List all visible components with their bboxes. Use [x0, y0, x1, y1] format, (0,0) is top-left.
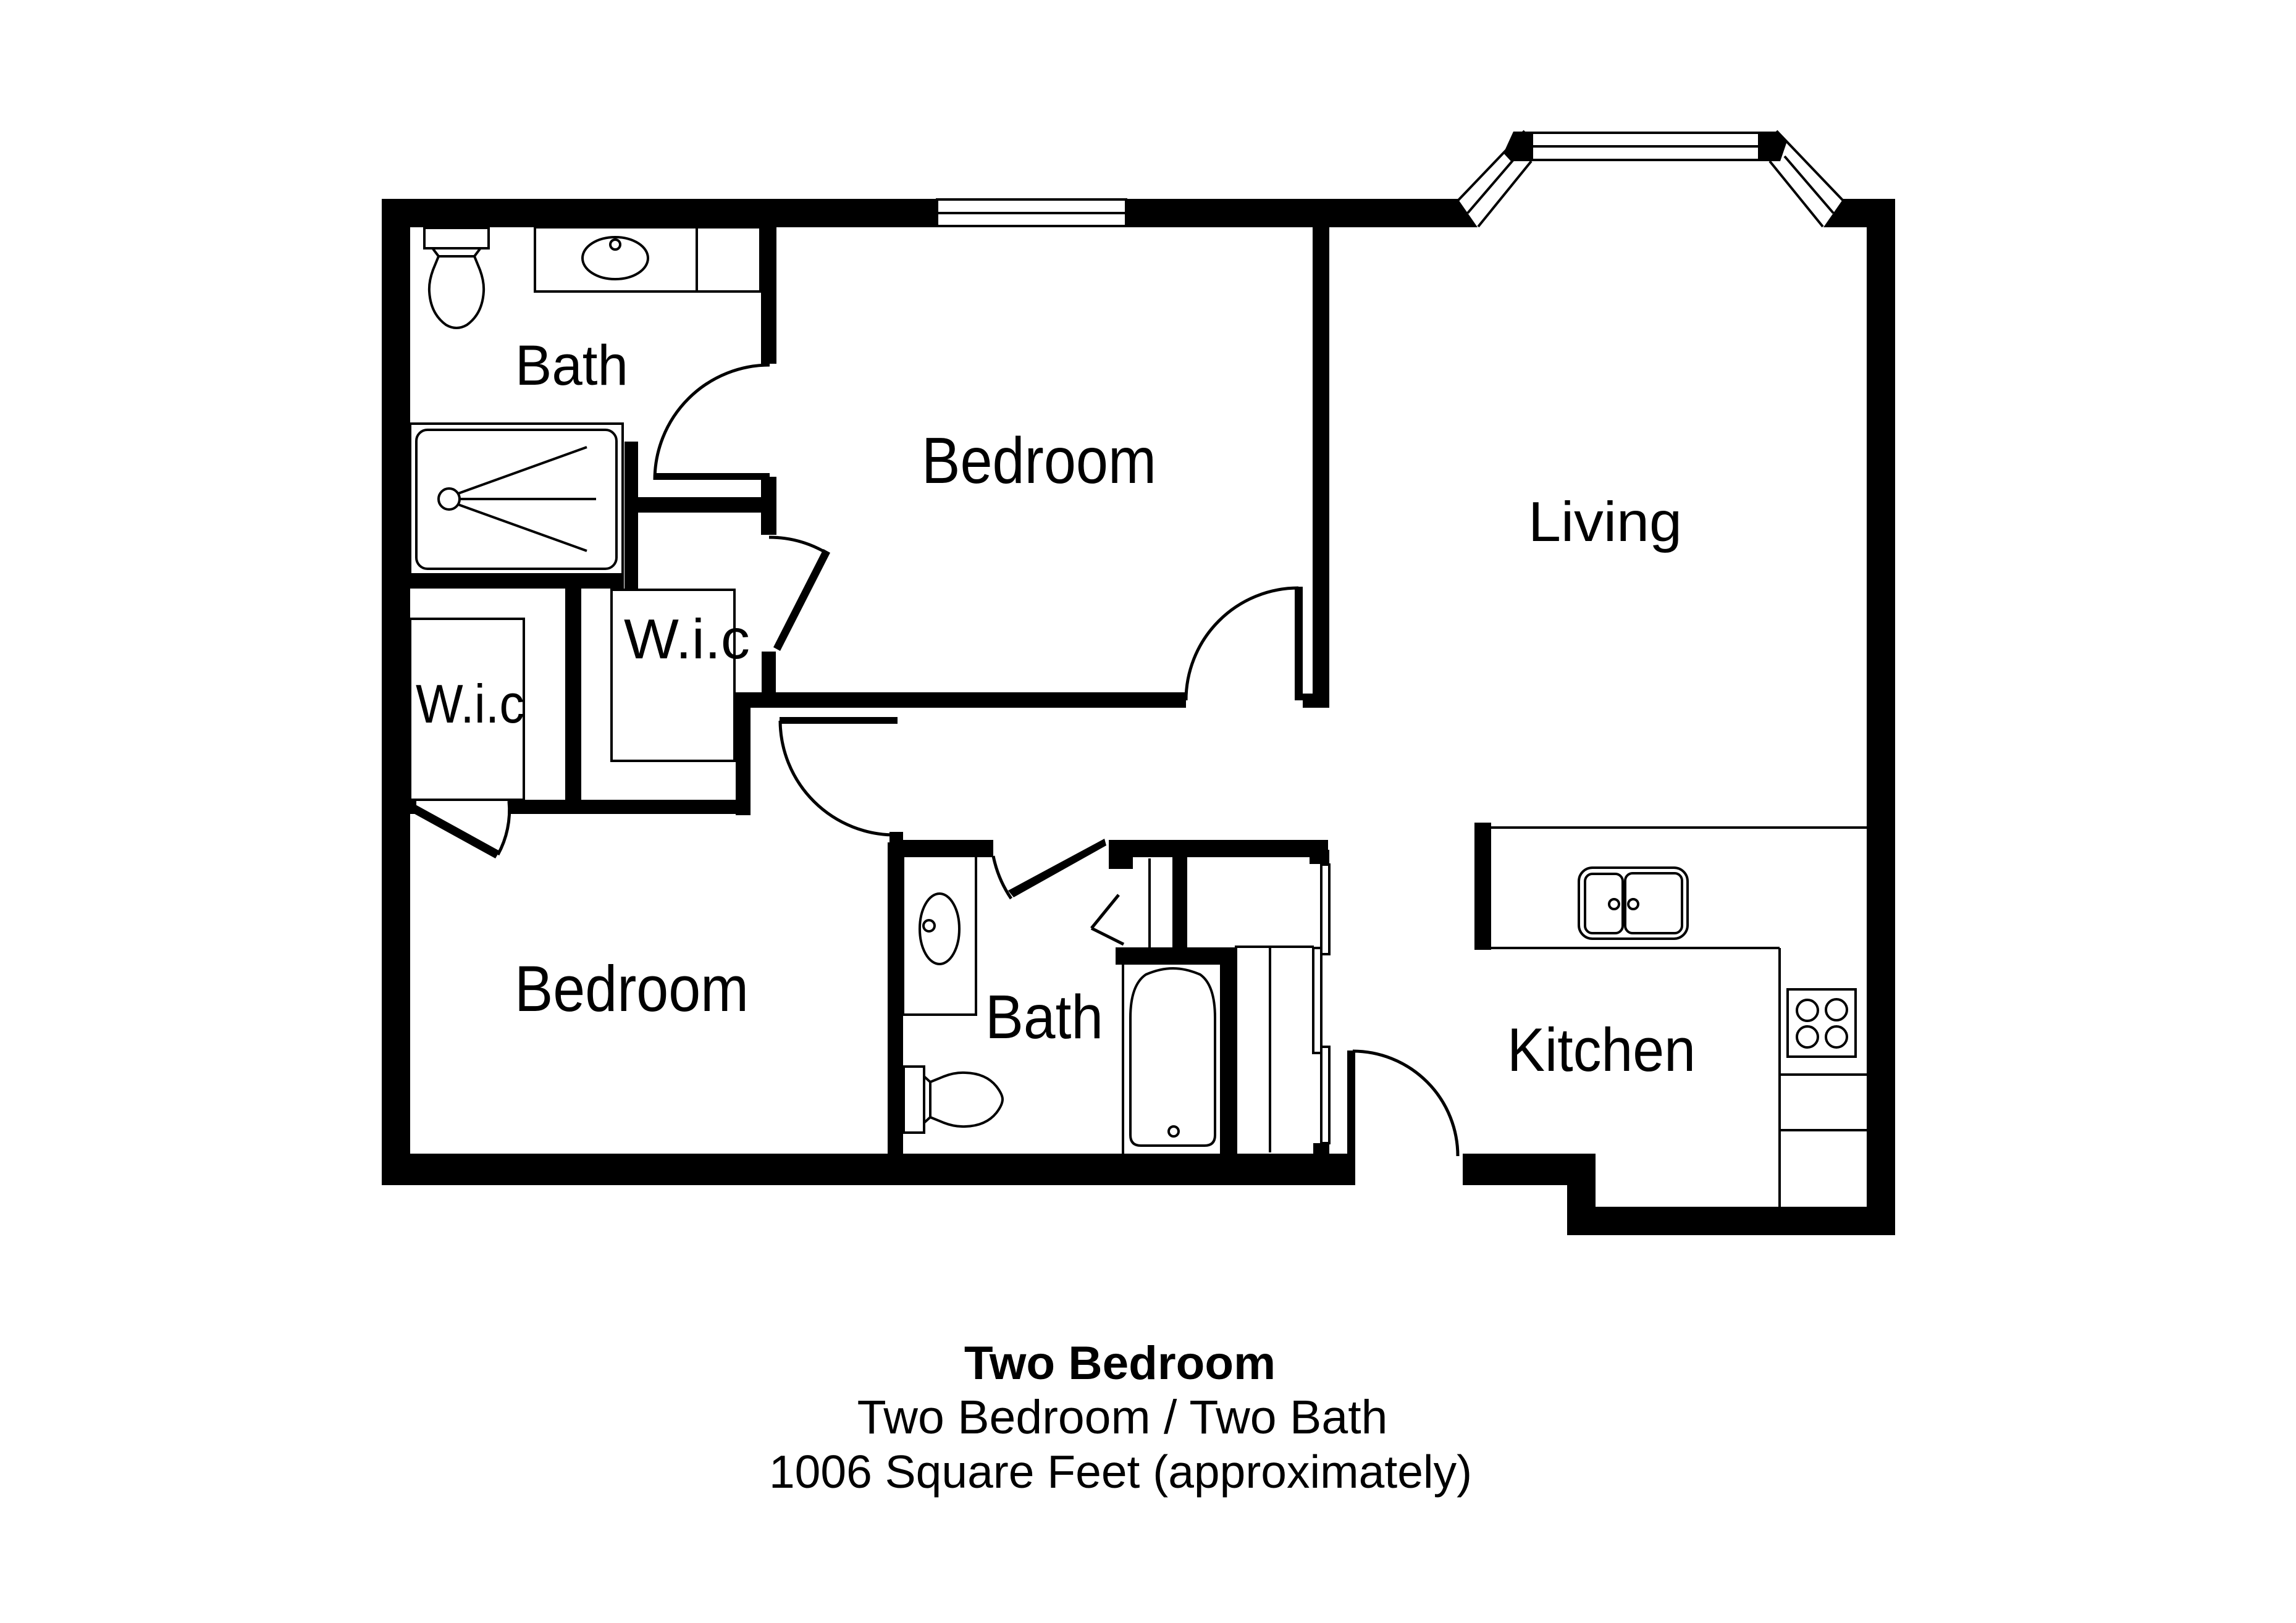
svg-text:W.i.c: W.i.c: [416, 673, 524, 734]
svg-text:Bath: Bath: [515, 334, 628, 397]
svg-text:Living: Living: [1528, 491, 1682, 553]
svg-text:Bedroom: Bedroom: [922, 424, 1156, 497]
svg-text:Two Bedroom: Two Bedroom: [964, 1337, 1276, 1390]
svg-text:Kitchen: Kitchen: [1507, 1015, 1696, 1084]
svg-text:W.i.c: W.i.c: [624, 608, 750, 671]
svg-text:Bath: Bath: [985, 983, 1103, 1052]
svg-text:1006 Square Feet (approximatel: 1006 Square Feet (approximately): [769, 1446, 1472, 1498]
svg-text:Bedroom: Bedroom: [515, 953, 749, 1025]
svg-text:Two Bedroom / Two Bath: Two Bedroom / Two Bath: [857, 1391, 1388, 1444]
